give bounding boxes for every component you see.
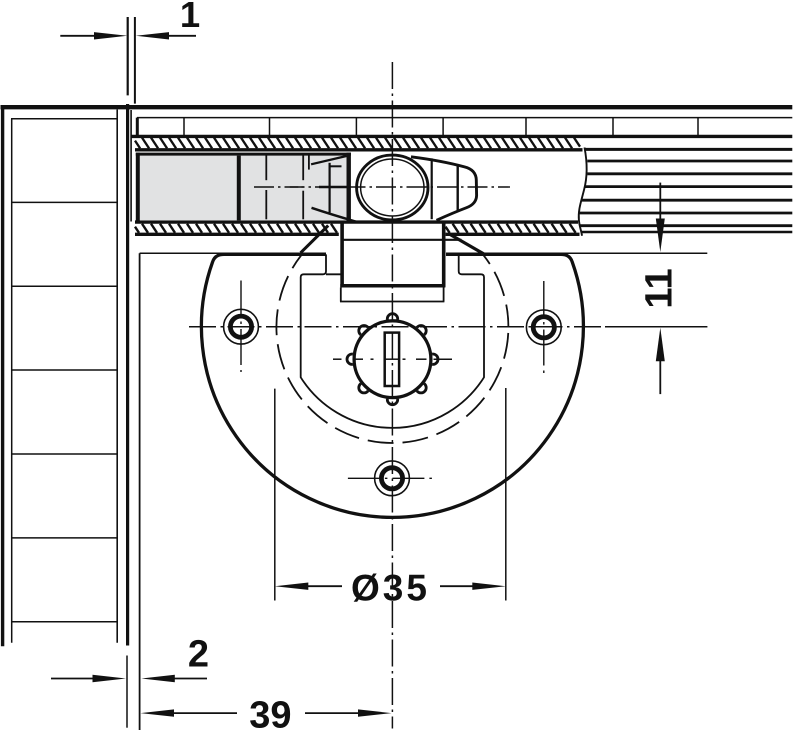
svg-text:11: 11 bbox=[639, 268, 681, 308]
svg-text:1: 1 bbox=[180, 0, 200, 35]
svg-text:39: 39 bbox=[249, 695, 291, 730]
svg-text:2: 2 bbox=[188, 634, 209, 676]
svg-text:Ø35: Ø35 bbox=[351, 567, 430, 608]
